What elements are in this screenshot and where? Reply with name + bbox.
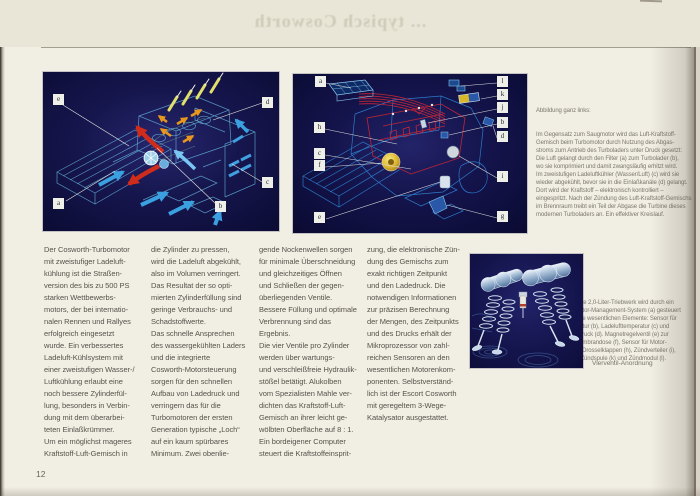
figure2-label-a: a	[315, 76, 326, 87]
figure-engine-management: a h c f e l k j b d i g	[293, 74, 527, 233]
figure1-label-c: c	[262, 177, 273, 188]
page-bottom-shadow	[0, 487, 700, 496]
body-column-1: Der Cosworth-Turbomotor mit zweistufiger…	[44, 244, 152, 460]
scanned-page: ... typisch Cosworth	[0, 0, 700, 496]
figure1-label-e: e	[53, 94, 64, 105]
page-left-edge-shadow	[0, 47, 5, 496]
figure2-label-k: k	[497, 89, 508, 100]
figure2-label-b: b	[497, 117, 508, 128]
figure2-label-l: l	[497, 76, 508, 87]
page-right-gutter-shadow	[650, 47, 694, 496]
body-column-2: die Zylinder zu pressen, wird die Ladelu…	[151, 244, 259, 460]
figure2-label-g: g	[497, 211, 508, 222]
page-number: 12	[36, 469, 45, 479]
figure2-label-d: d	[497, 131, 508, 142]
figure1-label-d: d	[262, 97, 273, 108]
figure-turbo-airflow: e d c a b	[43, 72, 279, 231]
engine-management-illustration	[293, 74, 527, 233]
figure2-label-h: h	[314, 122, 325, 133]
body-column-4: zung, die elektronische Zün- dung des Ge…	[367, 244, 475, 424]
figure2-label-f: f	[314, 160, 325, 171]
bleed-through-title: ... typisch Cosworth	[230, 11, 450, 32]
figure2-label-e: e	[314, 212, 325, 223]
distributor	[447, 146, 459, 158]
page-right-margin	[696, 47, 700, 496]
figure1-label-a: a	[53, 198, 64, 209]
coolant-sensor	[441, 132, 448, 138]
figure3-caption: Vierventil-Anordnung	[592, 360, 653, 367]
body-column-3: gende Nockenwellen sorgen für minimale Ü…	[259, 244, 367, 460]
figure2-label-j: j	[497, 102, 508, 113]
figure-four-valve	[470, 254, 583, 368]
figure2-label-c: c	[314, 148, 325, 159]
four-valve-illustration	[470, 254, 583, 368]
page-top-rule	[41, 47, 691, 48]
turbo-airflow-illustration	[43, 72, 279, 231]
solenoid-valve	[440, 176, 450, 188]
figure1-label-b: b	[215, 201, 226, 212]
figure2-label-i: i	[497, 171, 508, 182]
